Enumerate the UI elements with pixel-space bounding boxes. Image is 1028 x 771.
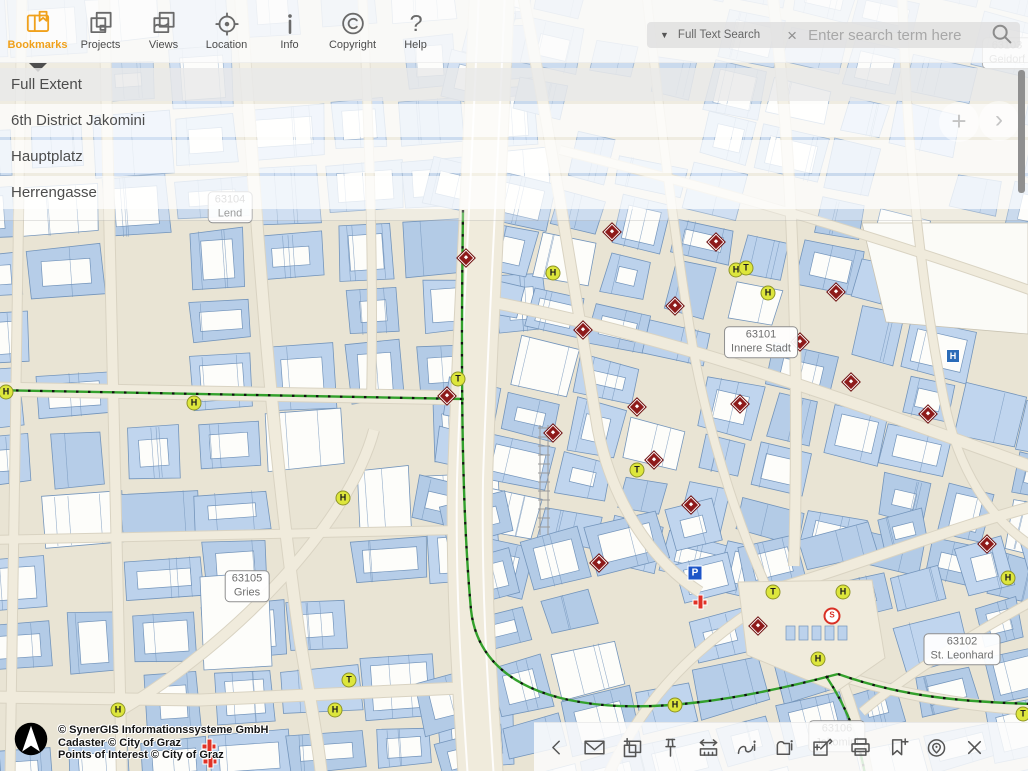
bus-stop-marker[interactable]: H bbox=[761, 286, 776, 301]
poi-marker[interactable] bbox=[750, 618, 767, 635]
bookmark-item[interactable]: Hauptplatz bbox=[0, 140, 1028, 173]
poi-marker[interactable] bbox=[646, 452, 663, 469]
bookmark-item[interactable]: Full Extent bbox=[0, 68, 1028, 101]
bookmark-item[interactable]: 6th District Jakomini bbox=[0, 104, 1028, 137]
tool-print-button[interactable] bbox=[848, 735, 873, 760]
toolbar-button-label: Views bbox=[149, 39, 178, 51]
attribution-line: Cadaster © City of Graz bbox=[58, 737, 268, 750]
toolbar-button-bookmarks[interactable]: Bookmarks bbox=[6, 0, 69, 62]
poi-marker[interactable] bbox=[545, 425, 562, 442]
measure-line-icon bbox=[734, 747, 759, 764]
district-code: 63105 bbox=[232, 572, 263, 586]
toolbar-button-label: Help bbox=[404, 39, 427, 51]
toolbar-button-label: Info bbox=[280, 39, 298, 51]
gis-map-viewer: HHHHHHHHHHHHHTTTTTTPS63101Innere Stadt63… bbox=[0, 0, 1028, 771]
poi-marker[interactable] bbox=[828, 284, 845, 301]
attribution-line: Points of Interest © City of Graz bbox=[58, 749, 268, 762]
bookmarks-icon bbox=[23, 8, 53, 38]
district-label: 63101Innere Stadt bbox=[724, 326, 798, 358]
close-icon bbox=[962, 747, 987, 764]
tool-measure-area-button[interactable] bbox=[772, 735, 797, 760]
search-mode-dropdown-icon[interactable]: ▼ bbox=[660, 30, 669, 40]
location-icon bbox=[212, 8, 242, 38]
district-name: St. Leonhard bbox=[931, 649, 994, 663]
poi-marker[interactable] bbox=[732, 396, 749, 413]
poi-marker[interactable] bbox=[458, 250, 475, 267]
tram-stop-marker[interactable]: T bbox=[1016, 707, 1028, 722]
tram-stop-marker[interactable]: T bbox=[342, 673, 357, 688]
tool-redlining-button[interactable] bbox=[810, 735, 835, 760]
help-icon: ? bbox=[401, 8, 431, 38]
panel-scrollbar[interactable] bbox=[1018, 70, 1025, 193]
tool-share-location-button[interactable] bbox=[924, 735, 949, 760]
district-code: 63101 bbox=[731, 328, 791, 342]
toolbar-button-location[interactable]: Location bbox=[195, 0, 258, 62]
copy-features-icon bbox=[620, 747, 645, 764]
toolbar-button-label: Projects bbox=[81, 39, 121, 51]
bus-stop-marker[interactable]: H bbox=[1001, 571, 1016, 586]
tool-copy-features-button[interactable] bbox=[620, 735, 645, 760]
toolbar-button-views[interactable]: Views bbox=[132, 0, 195, 62]
poi-marker[interactable] bbox=[439, 388, 456, 405]
poi-marker[interactable] bbox=[629, 399, 646, 416]
measure-area-icon bbox=[772, 747, 797, 764]
toolbar-button-label: Copyright bbox=[329, 39, 376, 51]
poi-marker[interactable] bbox=[683, 497, 700, 514]
hotel-marker[interactable]: H bbox=[946, 349, 960, 363]
tool-collapse-left-button[interactable] bbox=[544, 735, 569, 760]
bus-stop-marker[interactable]: H bbox=[336, 491, 351, 506]
tram-stop-marker[interactable]: T bbox=[739, 261, 754, 276]
poi-marker[interactable] bbox=[604, 224, 621, 241]
add-bookmark-icon bbox=[886, 747, 911, 764]
tool-email-button[interactable] bbox=[582, 735, 607, 760]
toolbar-button-copyright[interactable]: Copyright bbox=[321, 0, 384, 62]
pharmacy-cross-marker[interactable] bbox=[694, 596, 707, 609]
share-location-icon bbox=[924, 747, 949, 764]
main-toolbar: BookmarksProjectsViewsLocationInfoCopyri… bbox=[0, 0, 1028, 63]
transit-stop-marker[interactable]: S bbox=[824, 608, 841, 625]
search-bar: ▼ Full Text Search × bbox=[647, 22, 1020, 48]
search-input[interactable] bbox=[806, 26, 989, 45]
bus-stop-marker[interactable]: H bbox=[668, 698, 683, 713]
toolbar-button-label: Location bbox=[206, 39, 248, 51]
parking-marker[interactable]: P bbox=[688, 566, 703, 581]
redlining-icon bbox=[810, 747, 835, 764]
collapse-left-icon bbox=[544, 747, 569, 764]
poi-marker[interactable] bbox=[708, 234, 725, 251]
bookmark-item[interactable]: Herrengasse bbox=[0, 176, 1028, 209]
bus-stop-marker[interactable]: H bbox=[0, 385, 14, 400]
search-icon[interactable] bbox=[989, 22, 1015, 48]
tram-stop-marker[interactable]: T bbox=[451, 372, 466, 387]
district-name: Innere Stadt bbox=[731, 342, 791, 356]
svg-text:?: ? bbox=[409, 10, 422, 36]
bus-stop-marker[interactable]: H bbox=[811, 652, 826, 667]
district-code: 63102 bbox=[931, 635, 994, 649]
tool-pin-button[interactable] bbox=[658, 735, 683, 760]
tram-stop-marker[interactable]: T bbox=[630, 463, 645, 478]
pin-icon bbox=[658, 747, 683, 764]
poi-marker[interactable] bbox=[575, 322, 592, 339]
district-name: Gries bbox=[232, 586, 263, 600]
pan-right-button[interactable]: › bbox=[979, 101, 1019, 141]
bookmarks-panel: Full Extent6th District JakominiHauptpla… bbox=[0, 62, 1028, 221]
bus-stop-marker[interactable]: H bbox=[546, 266, 561, 281]
tool-close-button[interactable] bbox=[962, 735, 987, 760]
poi-marker[interactable] bbox=[591, 555, 608, 572]
map-tools-toolbar bbox=[534, 722, 1028, 771]
bus-stop-marker[interactable]: H bbox=[836, 585, 851, 600]
zoom-in-button[interactable]: + bbox=[939, 102, 979, 142]
copyright-icon bbox=[338, 8, 368, 38]
tool-measure-line-button[interactable] bbox=[734, 735, 759, 760]
map-attribution: © SynerGIS Informationssysteme GmbH Cada… bbox=[58, 724, 268, 762]
toolbar-button-help[interactable]: ?Help bbox=[384, 0, 447, 62]
views-icon bbox=[149, 8, 179, 38]
toolbar-button-info[interactable]: Info bbox=[258, 0, 321, 62]
projects-icon bbox=[86, 8, 116, 38]
info-icon bbox=[275, 8, 305, 38]
measure-distance-icon bbox=[696, 747, 721, 764]
district-label: 63105Gries bbox=[225, 570, 270, 602]
poi-marker[interactable] bbox=[667, 298, 684, 315]
attribution-line: © SynerGIS Informationssysteme GmbH bbox=[58, 724, 268, 737]
poi-marker[interactable] bbox=[843, 374, 860, 391]
toolbar-button-label: Bookmarks bbox=[8, 39, 68, 51]
bus-stop-marker[interactable]: H bbox=[111, 703, 126, 718]
north-arrow bbox=[14, 722, 48, 756]
search-mode-label[interactable]: Full Text Search bbox=[678, 29, 760, 41]
search-clear-icon[interactable]: × bbox=[787, 27, 797, 44]
bus-stop-marker[interactable]: H bbox=[187, 396, 202, 411]
toolbar-button-projects[interactable]: Projects bbox=[69, 0, 132, 62]
email-icon bbox=[582, 747, 607, 764]
tool-measure-distance-button[interactable] bbox=[696, 735, 721, 760]
poi-marker[interactable] bbox=[920, 406, 937, 423]
district-label: 63102St. Leonhard bbox=[924, 633, 1001, 665]
bus-stop-marker[interactable]: H bbox=[328, 703, 343, 718]
poi-marker[interactable] bbox=[979, 536, 996, 553]
print-icon bbox=[848, 747, 873, 764]
tool-add-bookmark-button[interactable] bbox=[886, 735, 911, 760]
tram-stop-marker[interactable]: T bbox=[766, 585, 781, 600]
